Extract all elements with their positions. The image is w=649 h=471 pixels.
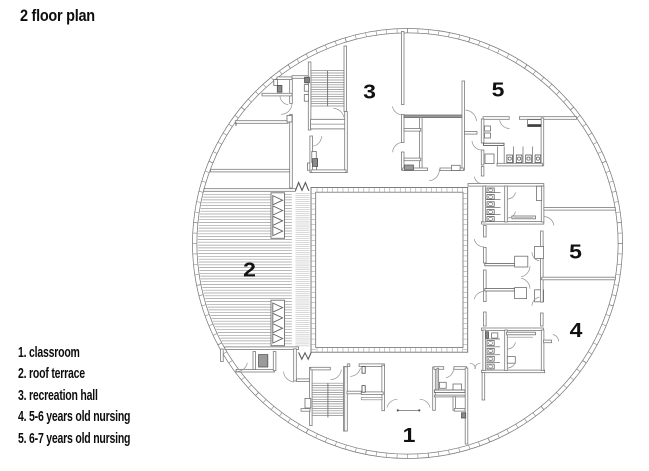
svg-text:5: 5 bbox=[569, 241, 582, 264]
svg-text:1: 1 bbox=[403, 424, 416, 447]
svg-text:5: 5 bbox=[492, 79, 505, 102]
svg-text:2: 2 bbox=[243, 258, 256, 281]
svg-text:4: 4 bbox=[570, 319, 583, 342]
svg-text:3: 3 bbox=[363, 80, 376, 103]
